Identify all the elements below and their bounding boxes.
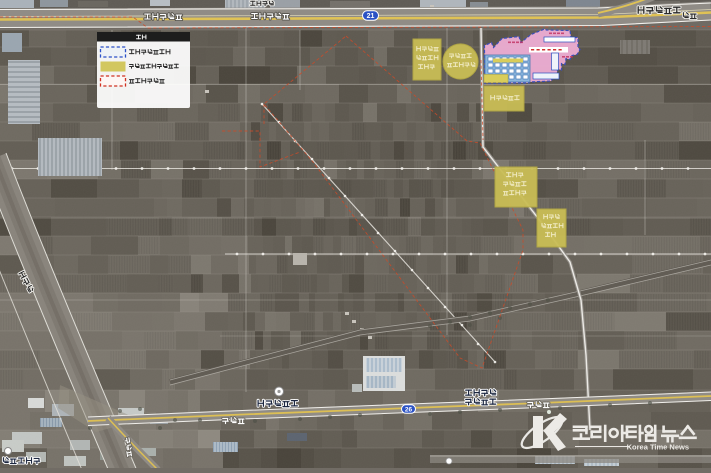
svg-text:26: 26 (405, 406, 413, 413)
svg-text:Korea Time News: Korea Time News (627, 443, 689, 452)
svg-text:21: 21 (367, 13, 375, 20)
